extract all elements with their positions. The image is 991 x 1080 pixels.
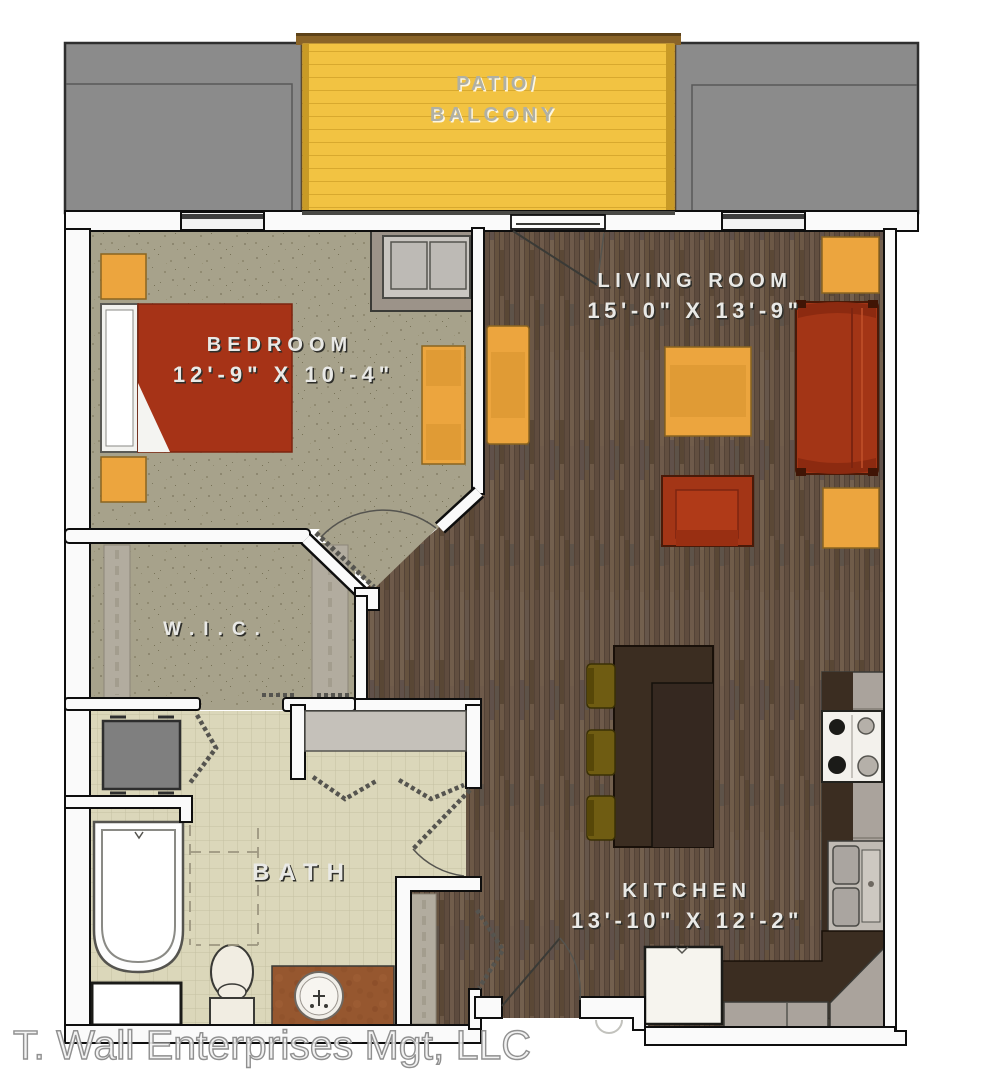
svg-text:BALCONY: BALCONY xyxy=(430,104,558,126)
svg-text:BATH: BATH xyxy=(252,859,353,886)
svg-text:BEDROOM: BEDROOM xyxy=(207,334,353,356)
svg-text:W.I.C.: W.I.C. xyxy=(163,619,269,640)
svg-text:15'-0" X 13'-9": 15'-0" X 13'-9" xyxy=(587,298,802,323)
svg-text:PATIO/: PATIO/ xyxy=(456,73,538,95)
svg-text:13'-10" X 12'-2": 13'-10" X 12'-2" xyxy=(571,908,803,933)
svg-text:T. Wall Enterprises Mgt, LLC: T. Wall Enterprises Mgt, LLC xyxy=(13,1022,531,1068)
svg-text:12'-9" X 10'-4": 12'-9" X 10'-4" xyxy=(173,362,394,387)
svg-text:LIVING ROOM: LIVING ROOM xyxy=(598,270,793,292)
svg-text:KITCHEN: KITCHEN xyxy=(622,880,752,902)
